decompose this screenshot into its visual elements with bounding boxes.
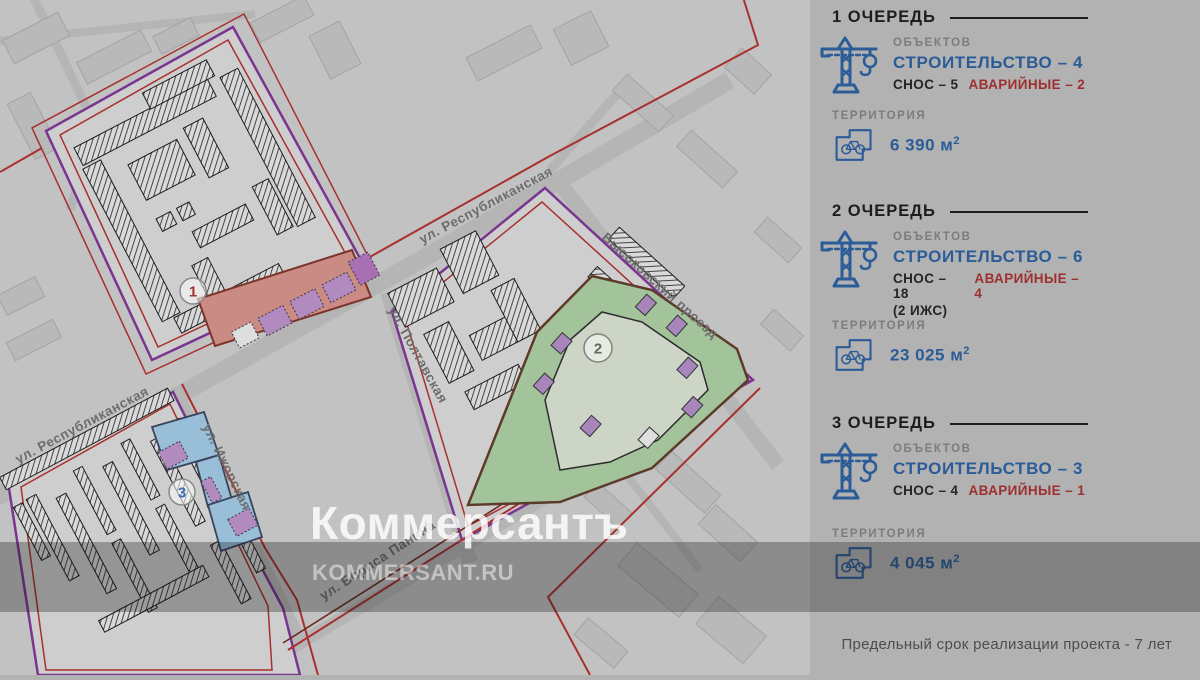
territory-area-sup: 2 [963, 345, 970, 357]
territory-label: ТЕРРИТОРИЯ [832, 320, 926, 332]
objects-label: ОБЪЕКТОВ [893, 443, 1085, 455]
emergency-count: АВАРИЙНЫЕ – 4 [974, 271, 1088, 301]
zone3-number: 3 [178, 485, 186, 502]
territory-area: 23 025 м2 [890, 345, 970, 366]
territory-label: ТЕРРИТОРИЯ [832, 110, 926, 122]
crane-icon [818, 441, 884, 503]
project-deadline-note: Предельный срок реализации проекта - 7 л… [841, 636, 1172, 653]
zone3-marker: 3 [169, 479, 195, 505]
izhs-note: (2 ИЖС) [893, 303, 1088, 318]
construction-count: СТРОИТЕЛЬСТВО – 4 [893, 53, 1085, 73]
title-rule [950, 17, 1088, 19]
emergency-count: АВАРИЙНЫЕ – 2 [968, 77, 1085, 92]
zone2-number: 2 [594, 341, 602, 358]
phase2-title: 2 ОЧЕРЕДЬ [832, 202, 936, 221]
phase1-title: 1 ОЧЕРЕДЬ [832, 8, 936, 27]
objects-label: ОБЪЕКТОВ [893, 231, 1088, 243]
crane-icon [818, 229, 884, 291]
territory-icon [834, 336, 874, 374]
dark-overlay-band [0, 542, 1200, 612]
zone2-marker: 2 [584, 334, 612, 362]
territory-area-sup: 2 [953, 135, 960, 147]
demolition-count: СНОС – 5 [893, 77, 958, 92]
zone1-marker: 1 [180, 278, 206, 304]
objects-label: ОБЪЕКТОВ [893, 37, 1085, 49]
title-rule [950, 423, 1088, 425]
construction-count: СТРОИТЕЛЬСТВО – 3 [893, 459, 1085, 479]
kommersant-site-watermark: KOMMERSANT.RU [312, 560, 514, 586]
emergency-count: АВАРИЙНЫЕ – 1 [968, 483, 1085, 498]
demolition-count: СНОС – 18 [893, 271, 964, 301]
territory-icon [834, 126, 874, 164]
construction-count: СТРОИТЕЛЬСТВО – 6 [893, 247, 1088, 267]
screenshot-root: 1 2 3 ул. Республиканская ул. Республика… [0, 0, 1200, 675]
phase3-title: 3 ОЧЕРЕДЬ [832, 414, 936, 433]
territory-area: 6 390 м2 [890, 135, 960, 156]
crane-icon [818, 35, 884, 97]
territory-area-value: 6 390 м [890, 135, 953, 154]
kommersant-logo-watermark: Коммерсантъ [310, 496, 628, 550]
phase2-section: 2 ОЧЕРЕДЬ ОБЪЕКТОВ СТРОИТЕЛЬСТВО – 6 СНО… [832, 202, 1088, 388]
title-rule [950, 211, 1088, 213]
zone1-number: 1 [189, 284, 197, 301]
phase1-section: 1 ОЧЕРЕДЬ ОБЪЕКТОВ СТРОИТЕЛЬСТВО – 4 СНО… [832, 8, 1088, 178]
territory-label: ТЕРРИТОРИЯ [832, 528, 926, 540]
territory-area-value: 23 025 м [890, 345, 963, 364]
demolition-count: СНОС – 4 [893, 483, 958, 498]
